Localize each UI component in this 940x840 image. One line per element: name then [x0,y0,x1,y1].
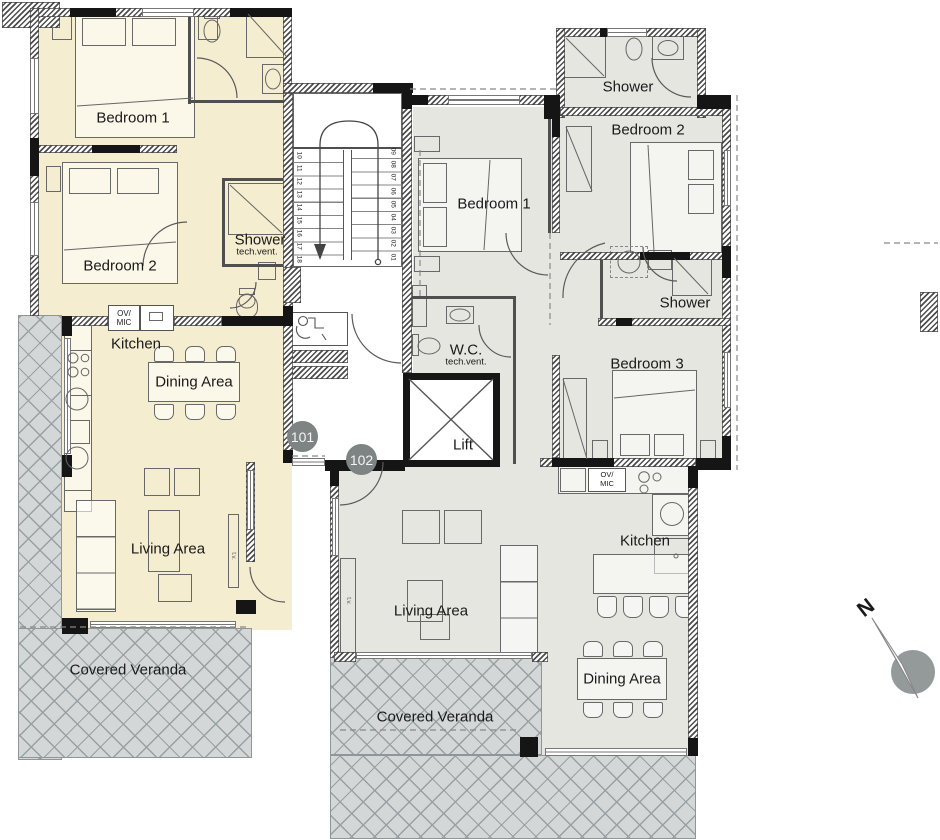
room-label-kitchen-101: Kitchen [111,337,161,352]
room-label-shower-top-102: Shower [603,80,654,95]
room-label-wc-102: W.C. [450,343,483,358]
room-label-dining-101: Dining Area [155,375,233,390]
accessibility-icon [296,317,326,341]
floor-plan: 10 11 12 13 14 15 16 17 18 09 08 07 06 0… [0,0,940,840]
door-arc [563,243,605,298]
room-label-bedroom1-102: Bedroom 1 [457,197,530,212]
unit-number: 102 [350,452,373,468]
door-arc [250,567,285,602]
door-arc [643,247,677,281]
room-label-living-102: Living Area [394,604,468,619]
room-label-shower-101: Shower [235,233,286,248]
room-label-bedroom2-101: Bedroom 2 [83,259,156,274]
unit-badge-101: 101 [287,421,318,452]
lift-label: Lift [453,438,473,453]
room-label-living-101: Living Area [131,542,205,557]
room-label-bedroom2-102: Bedroom 2 [611,123,684,138]
room-label-dining-102: Dining Area [583,672,661,687]
room-label-veranda-101: Covered Veranda [70,663,187,678]
unit-badge-102: 102 [346,444,377,475]
dashed-lines [20,89,938,730]
room-label-kitchen-102: Kitchen [620,534,670,549]
unit-number: 101 [291,429,314,445]
room-label-shower-mid-102: Shower [660,296,711,311]
room-label-bedroom1-101: Bedroom 1 [96,111,169,126]
room-label-veranda-102: Covered Veranda [377,710,494,725]
door-arc [197,58,237,98]
door-arcs [143,58,691,602]
door-arc [652,58,691,97]
lift-x-icon [409,379,493,460]
room-label-wc-vent-102: tech.vent. [445,357,486,367]
compass-needle [872,618,935,698]
door-arc [506,233,548,275]
door-arc [352,314,401,363]
room-label-shower-vent-101: tech.vent. [236,247,277,257]
room-label-bedroom3-102: Bedroom 3 [610,357,683,372]
door-arc [479,325,511,357]
stair-direction-arrow [314,121,381,265]
